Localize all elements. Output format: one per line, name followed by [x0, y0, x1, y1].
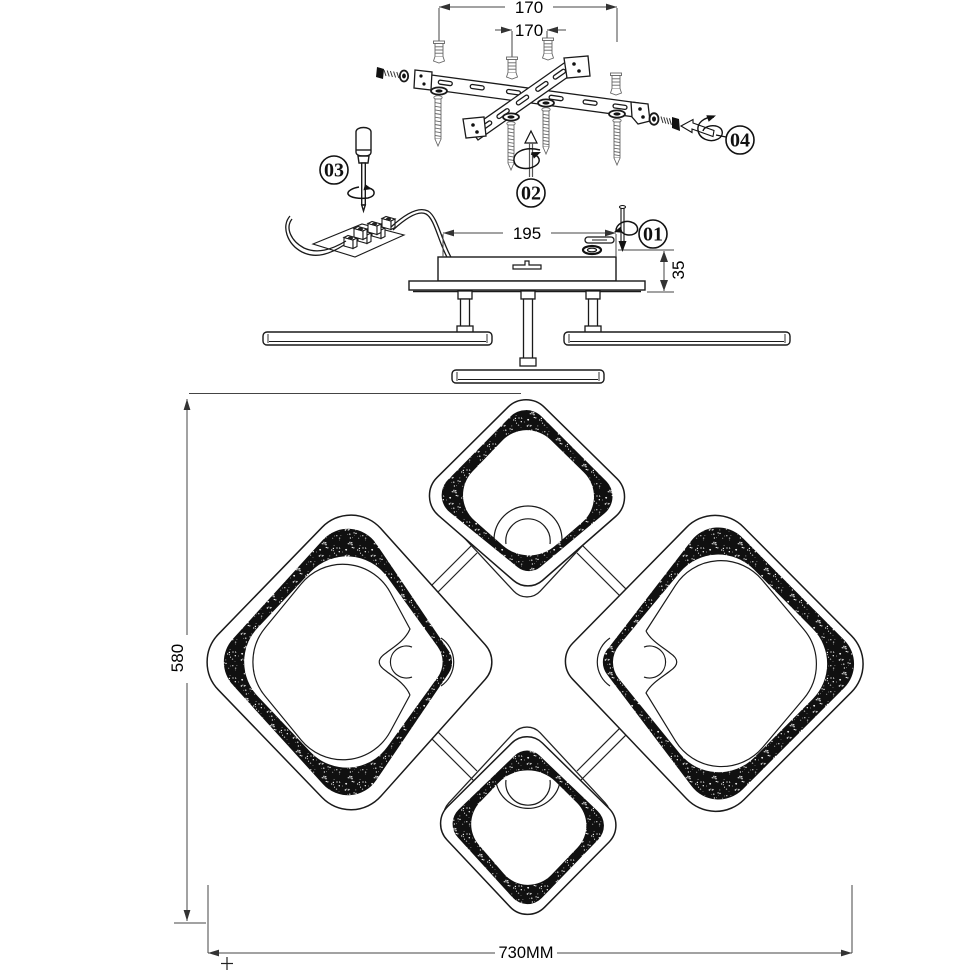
svg-text:01: 01	[643, 224, 663, 246]
svg-text:730MM: 730MM	[498, 944, 553, 962]
svg-text:35: 35	[669, 261, 688, 280]
svg-text:170: 170	[515, 0, 543, 17]
svg-text:580: 580	[168, 644, 187, 672]
svg-text:04: 04	[730, 130, 750, 152]
svg-text:195: 195	[513, 224, 541, 243]
svg-text:02: 02	[521, 183, 541, 205]
svg-text:03: 03	[324, 160, 344, 182]
svg-text:170: 170	[515, 21, 543, 40]
